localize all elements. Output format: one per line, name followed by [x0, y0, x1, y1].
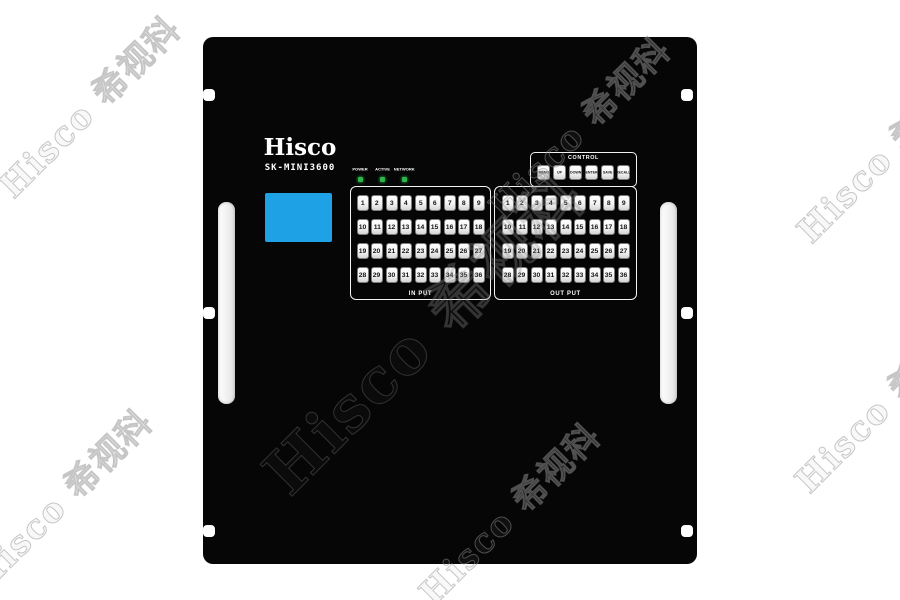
output-channel-number: 15: [576, 223, 584, 230]
output-channel-button[interactable]: 15: [574, 219, 586, 235]
rack-handle-right: [660, 202, 677, 404]
input-channel-number: 34: [446, 271, 454, 278]
control-button[interactable]: ENTER: [585, 165, 598, 180]
input-channel-button[interactable]: 23: [415, 243, 427, 259]
control-button-label: MENU: [538, 170, 549, 174]
watermark-text: Hisco 希视科: [782, 298, 900, 502]
mounting-hole: [203, 89, 215, 101]
led-indicator-icon: [380, 177, 385, 182]
input-channel-button[interactable]: 4: [400, 195, 412, 211]
input-channel-number: 5: [419, 199, 423, 206]
output-channel-number: 3: [535, 199, 539, 206]
input-channel-button[interactable]: 24: [429, 243, 441, 259]
led-indicator-icon: [358, 177, 363, 182]
input-key-grid: 1 2 3 4 5 6: [351, 187, 490, 283]
input-channel-number: 4: [404, 199, 408, 206]
input-channel-button[interactable]: 26: [458, 243, 470, 259]
input-channel-button[interactable]: 1: [357, 195, 369, 211]
input-channel-button[interactable]: 22: [400, 243, 412, 259]
input-channel-number: 32: [417, 271, 425, 278]
input-channel-number: 30: [388, 271, 396, 278]
control-button[interactable]: SAVE: [601, 165, 614, 180]
input-channel-number: 15: [431, 223, 439, 230]
input-channel-button[interactable]: 12: [386, 219, 398, 235]
input-channel-number: 6: [433, 199, 437, 206]
input-channel-button[interactable]: 21: [386, 243, 398, 259]
input-channel-number: 2: [375, 199, 379, 206]
control-button[interactable]: UP: [553, 165, 566, 180]
input-channel-number: 20: [373, 247, 381, 254]
input-channel-button[interactable]: 35: [458, 267, 470, 283]
input-channel-number: 27: [475, 247, 483, 254]
output-channel-button[interactable]: 20: [516, 243, 528, 259]
input-channel-number: 9: [477, 199, 481, 206]
input-channel-number: 16: [446, 223, 454, 230]
lcd-screen: [265, 193, 332, 242]
output-channel-number: 12: [533, 223, 541, 230]
input-channel-button[interactable]: 10: [357, 219, 369, 235]
input-channel-number: 21: [388, 247, 396, 254]
input-channel-number: 29: [373, 271, 381, 278]
status-led: POWER: [349, 165, 371, 182]
control-button[interactable]: MENU: [537, 165, 550, 180]
output-channel-number: 27: [620, 247, 628, 254]
output-channel-button[interactable]: 5: [560, 195, 572, 211]
output-channel-button[interactable]: 16: [589, 219, 601, 235]
input-channel-button[interactable]: 8: [458, 195, 470, 211]
input-channel-number: 10: [359, 223, 367, 230]
input-channel-button[interactable]: 31: [400, 267, 412, 283]
input-channel-button[interactable]: 34: [444, 267, 456, 283]
watermark-text: Hisco 希视科: [0, 3, 190, 207]
led-label: NETWORK: [394, 167, 415, 171]
input-channel-number: 7: [448, 199, 452, 206]
input-channel-number: 28: [359, 271, 367, 278]
watermark-text: Hisco 希视科: [0, 396, 162, 600]
output-channel-button[interactable]: 36: [618, 267, 630, 283]
output-channel-button[interactable]: 35: [603, 267, 615, 283]
input-channel-number: 35: [460, 271, 468, 278]
input-channel-number: 8: [462, 199, 466, 206]
output-channel-number: 33: [576, 271, 584, 278]
output-channel-button[interactable]: 14: [560, 219, 572, 235]
input-channel-button[interactable]: 11: [371, 219, 383, 235]
control-button[interactable]: DOWN: [569, 165, 582, 180]
input-channel-number: 12: [388, 223, 396, 230]
mounting-hole: [203, 525, 215, 537]
output-channel-number: 6: [578, 199, 582, 206]
output-channel-button[interactable]: 18: [618, 219, 630, 235]
control-button[interactable]: RECALL: [617, 165, 630, 180]
output-channel-number: 22: [547, 247, 555, 254]
output-channel-number: 34: [591, 271, 599, 278]
output-channel-number: 9: [622, 199, 626, 206]
input-section-label: IN PUT: [375, 290, 467, 297]
output-channel-button[interactable]: 24: [574, 243, 586, 259]
input-channel-button[interactable]: 6: [429, 195, 441, 211]
output-channel-number: 35: [605, 271, 613, 278]
brand-block: Hisco SK-MINI3600: [259, 136, 341, 173]
led-indicator-icon: [402, 177, 407, 182]
output-channel-button[interactable]: 6: [574, 195, 586, 211]
input-channel-button[interactable]: 15: [429, 219, 441, 235]
output-channel-number: 30: [533, 271, 541, 278]
output-channel-button[interactable]: 1: [502, 195, 514, 211]
output-section: 1 2 3 4 5 6: [494, 186, 637, 300]
input-channel-number: 17: [460, 223, 468, 230]
input-channel-button[interactable]: 32: [415, 267, 427, 283]
output-channel-number: 7: [593, 199, 597, 206]
output-channel-button[interactable]: 8: [603, 195, 615, 211]
output-channel-number: 11: [518, 223, 525, 230]
status-led: ACTIVE: [371, 165, 393, 182]
status-led: NETWORK: [393, 165, 415, 182]
input-channel-number: 26: [460, 247, 468, 254]
output-channel-button[interactable]: 29: [516, 267, 528, 283]
output-channel-button[interactable]: 34: [589, 267, 601, 283]
output-channel-button[interactable]: 4: [545, 195, 557, 211]
input-channel-button[interactable]: 19: [357, 243, 369, 259]
input-channel-button[interactable]: 36: [473, 267, 485, 283]
control-button-label: SAVE: [603, 170, 613, 174]
model-number: SK-MINI3600: [259, 163, 341, 173]
output-channel-button[interactable]: 19: [502, 243, 514, 259]
output-channel-button[interactable]: 21: [531, 243, 543, 259]
output-channel-button[interactable]: 10: [502, 219, 514, 235]
input-channel-button[interactable]: 17: [458, 219, 470, 235]
input-channel-button[interactable]: 14: [415, 219, 427, 235]
input-channel-number: 33: [431, 271, 439, 278]
output-channel-number: 31: [547, 271, 555, 278]
input-channel-button[interactable]: 29: [371, 267, 383, 283]
status-led-group: POWER ACTIVE NETWORK: [349, 165, 415, 182]
output-channel-number: 23: [562, 247, 570, 254]
output-channel-button[interactable]: 2: [516, 195, 528, 211]
input-channel-button[interactable]: 25: [444, 243, 456, 259]
led-label: POWER: [352, 167, 367, 171]
input-channel-button[interactable]: 13: [400, 219, 412, 235]
output-channel-button[interactable]: 26: [603, 243, 615, 259]
output-channel-number: 28: [504, 271, 512, 278]
output-channel-number: 4: [549, 199, 553, 206]
control-button-label: UP: [557, 170, 562, 174]
input-channel-button[interactable]: 5: [415, 195, 427, 211]
output-channel-number: 5: [564, 199, 568, 206]
output-channel-number: 32: [562, 271, 570, 278]
output-channel-button[interactable]: 22: [545, 243, 557, 259]
mounting-hole: [681, 525, 693, 537]
control-button-label: ENTER: [585, 170, 597, 174]
output-channel-number: 16: [591, 223, 599, 230]
input-channel-number: 24: [431, 247, 439, 254]
mounting-hole: [681, 307, 693, 319]
input-channel-button[interactable]: 20: [371, 243, 383, 259]
rack-handle-left: [218, 202, 235, 404]
output-channel-button[interactable]: 17: [603, 219, 615, 235]
input-channel-number: 19: [359, 247, 367, 254]
output-channel-number: 26: [605, 247, 613, 254]
output-channel-number: 18: [620, 223, 628, 230]
control-section: CONTROL MENU UP DOWN ENTER: [530, 152, 637, 187]
output-channel-number: 8: [607, 199, 611, 206]
output-channel-button[interactable]: 32: [560, 267, 572, 283]
input-channel-number: 1: [361, 199, 365, 206]
mounting-hole: [681, 89, 693, 101]
led-label: ACTIVE: [375, 167, 390, 171]
output-channel-number: 24: [576, 247, 584, 254]
input-channel-button[interactable]: 16: [444, 219, 456, 235]
output-channel-number: 2: [520, 199, 524, 206]
brand-logo: Hisco: [259, 136, 341, 160]
output-channel-button[interactable]: 11: [516, 219, 528, 235]
input-channel-number: 13: [402, 223, 410, 230]
input-channel-number: 31: [402, 271, 410, 278]
control-button-label: RECALL: [616, 170, 631, 174]
output-channel-button[interactable]: 33: [574, 267, 586, 283]
control-section-title: CONTROL: [552, 154, 615, 160]
input-channel-number: 14: [417, 223, 425, 230]
input-channel-button[interactable]: 3: [386, 195, 398, 211]
output-channel-button[interactable]: 28: [502, 267, 514, 283]
input-channel-number: 11: [373, 223, 380, 230]
mounting-hole: [203, 307, 215, 319]
product-photo: Hisco SK-MINI3600 POWER ACTIVE NETWORK C…: [0, 0, 900, 600]
output-channel-number: 29: [518, 271, 526, 278]
control-keys: MENU UP DOWN ENTER SAVE R: [531, 165, 636, 180]
device-front-panel: [203, 37, 697, 564]
output-channel-button[interactable]: 12: [531, 219, 543, 235]
input-channel-button[interactable]: 7: [444, 195, 456, 211]
input-channel-number: 23: [417, 247, 425, 254]
input-channel-number: 22: [402, 247, 410, 254]
control-button-label: DOWN: [570, 170, 581, 174]
output-channel-number: 20: [518, 247, 526, 254]
output-channel-button[interactable]: 31: [545, 267, 557, 283]
output-channel-button[interactable]: 23: [560, 243, 572, 259]
output-channel-number: 19: [504, 247, 512, 254]
output-channel-number: 13: [547, 223, 555, 230]
input-channel-number: 3: [390, 199, 394, 206]
input-channel-number: 36: [475, 271, 483, 278]
output-channel-button[interactable]: 3: [531, 195, 543, 211]
output-channel-button[interactable]: 25: [589, 243, 601, 259]
input-channel-button[interactable]: 2: [371, 195, 383, 211]
watermark-text: Hisco 希视科: [784, 48, 900, 252]
input-channel-number: 25: [446, 247, 454, 254]
input-section: 1 2 3 4 5 6: [350, 186, 491, 300]
output-channel-number: 36: [620, 271, 628, 278]
output-key-grid: 1 2 3 4 5 6: [495, 187, 636, 283]
output-section-label: OUT PUT: [519, 290, 612, 297]
output-channel-number: 17: [605, 223, 613, 230]
input-channel-button[interactable]: 33: [429, 267, 441, 283]
input-channel-button[interactable]: 18: [473, 219, 485, 235]
output-channel-button[interactable]: 7: [589, 195, 601, 211]
output-channel-number: 10: [504, 223, 512, 230]
output-channel-number: 14: [562, 223, 570, 230]
output-channel-number: 25: [591, 247, 599, 254]
output-channel-button[interactable]: 27: [618, 243, 630, 259]
input-channel-number: 18: [475, 223, 483, 230]
input-channel-button[interactable]: 28: [357, 267, 369, 283]
output-channel-button[interactable]: 30: [531, 267, 543, 283]
input-channel-button[interactable]: 30: [386, 267, 398, 283]
output-channel-button[interactable]: 13: [545, 219, 557, 235]
output-channel-number: 1: [506, 199, 510, 206]
input-channel-button[interactable]: 9: [473, 195, 485, 211]
input-channel-button[interactable]: 27: [473, 243, 485, 259]
output-channel-number: 21: [533, 247, 541, 254]
output-channel-button[interactable]: 9: [618, 195, 630, 211]
